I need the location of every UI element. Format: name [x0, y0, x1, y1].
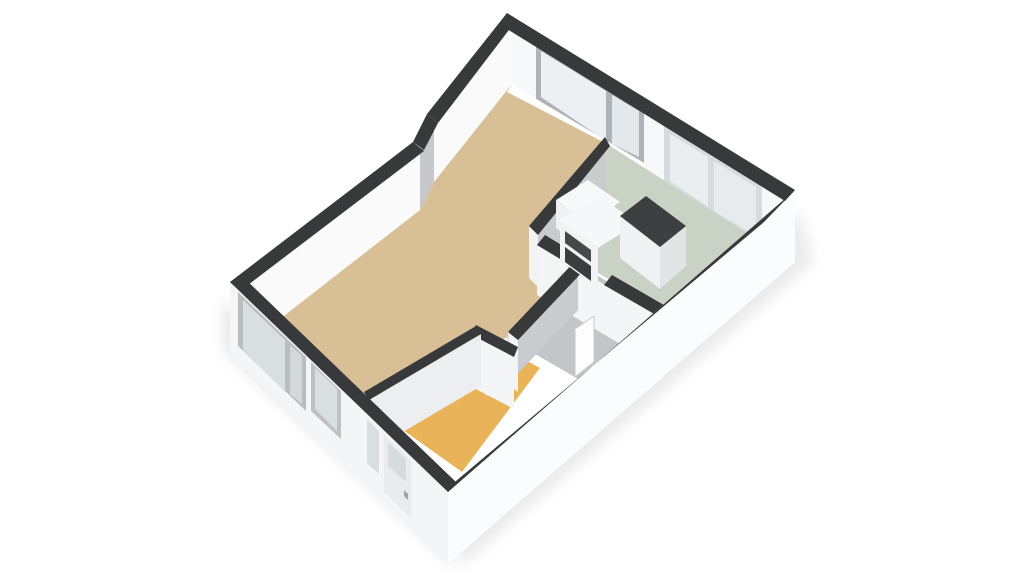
floorplan-3d-svg	[0, 0, 1024, 576]
wall-living-kitchen-endcap	[529, 226, 538, 287]
floorplan-render	[0, 0, 1024, 576]
